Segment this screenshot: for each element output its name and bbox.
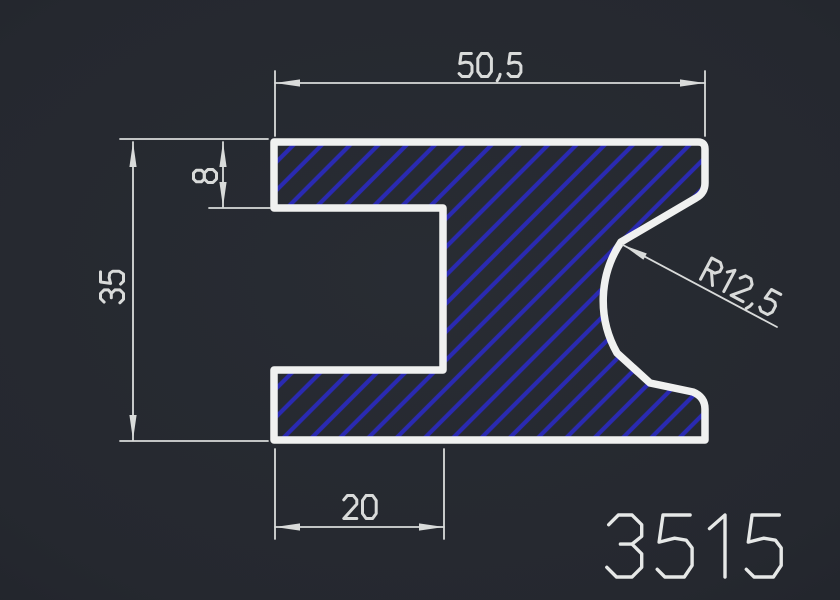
part-section	[274, 142, 705, 440]
dimension-overall-height	[101, 139, 269, 441]
dimension-top-width	[275, 54, 705, 137]
cad-canvas	[0, 0, 840, 600]
dimension-flange-thickness	[194, 142, 271, 208]
dimension-bottom-notch-width	[275, 449, 444, 539]
part-number-text	[607, 515, 781, 577]
part-outline	[274, 142, 705, 440]
dimension-fillet-radius	[623, 245, 781, 327]
drawing-area	[0, 0, 840, 600]
